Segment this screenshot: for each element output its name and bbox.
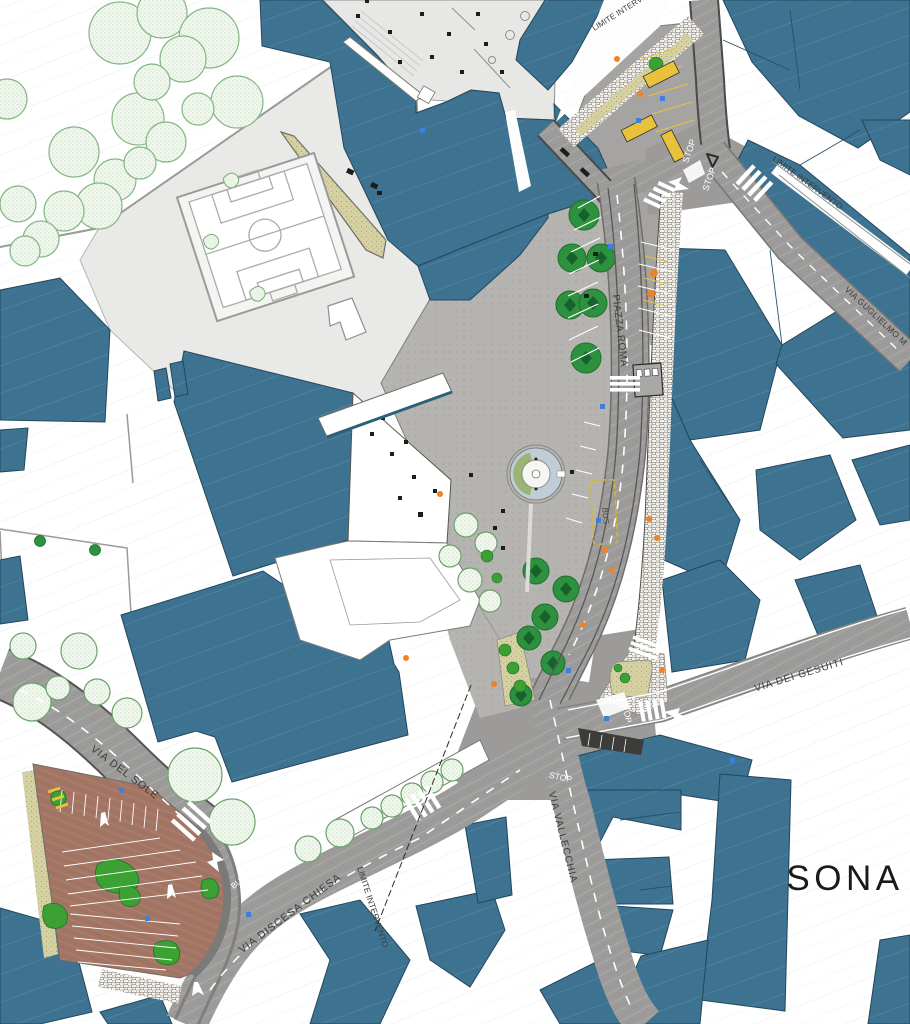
svg-text:SONA: SONA: [786, 859, 903, 898]
svg-text:BUS: BUS: [600, 507, 610, 524]
